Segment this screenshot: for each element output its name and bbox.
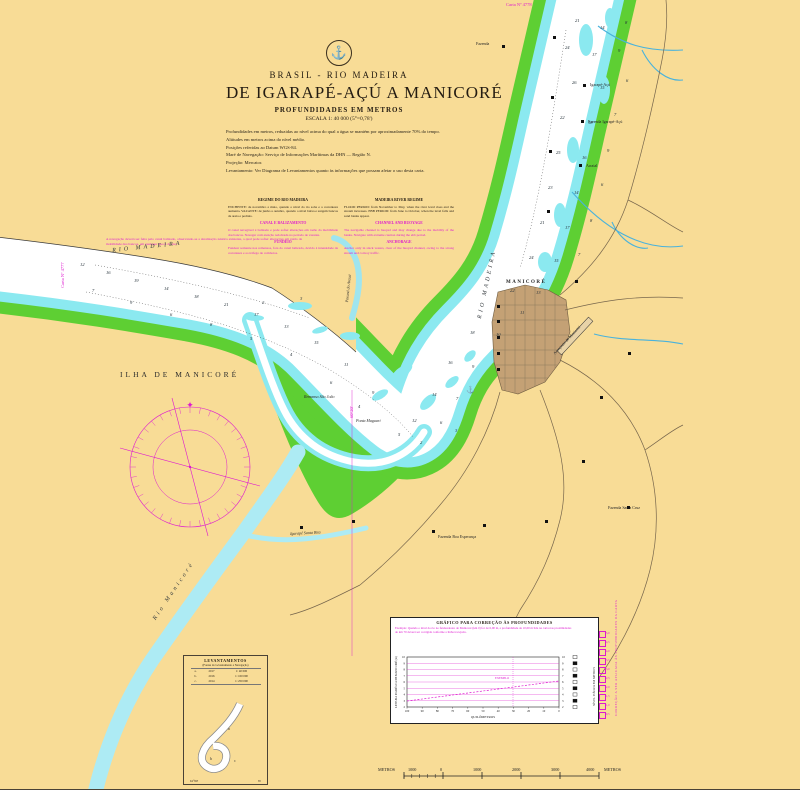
- depth-sounding: 18: [194, 294, 199, 299]
- graph-title: GRÁFICO PARA CORREÇÃO ÀS PROFUNDIDADES: [391, 620, 598, 625]
- depth-sounding: 5: [250, 336, 252, 341]
- svg-text:a: a: [228, 726, 230, 731]
- depth-sounding: 8: [210, 322, 212, 327]
- depth-sounding: 8: [590, 218, 592, 223]
- svg-text:90: 90: [421, 709, 425, 713]
- map-label: Arraial: [586, 163, 597, 168]
- note-line: Profundidades em metros, reduzidas ao ní…: [226, 128, 452, 136]
- correction-bar: [599, 694, 606, 701]
- depth-sounding: 4: [290, 352, 292, 357]
- anchorage-icon: ⚓: [466, 385, 475, 394]
- note-line: Altitudes em metros acima do nível médio…: [226, 136, 452, 144]
- surveys-subtitle: (Fontes do Levantamento e Navegação): [184, 663, 267, 667]
- depth-sounding: 3: [455, 428, 457, 433]
- svg-text:20: 20: [527, 709, 531, 713]
- notes-en-channel: The navigable channel is buoyed and may …: [344, 228, 454, 238]
- depth-sounding: 4: [358, 404, 360, 409]
- depth-sounding: 6: [170, 312, 172, 317]
- svg-text:60: 60: [466, 709, 470, 713]
- scale-bar: [404, 772, 599, 779]
- svg-text:4: 4: [404, 693, 406, 697]
- building-square: [627, 506, 630, 509]
- building-square: [581, 120, 584, 123]
- map-label: Carta Nº 4777: [60, 262, 65, 288]
- map-label: Fazenda Santa Cruz: [608, 505, 640, 510]
- scale-bar-label: METROS: [604, 767, 621, 772]
- svg-text:8: 8: [562, 668, 564, 672]
- depth-sounding: 21: [540, 220, 545, 225]
- scale-bar-label: METROS: [378, 767, 395, 772]
- depth-sounding: 13: [536, 290, 541, 295]
- svg-text:70: 70: [451, 709, 455, 713]
- correction-value: 2,5: [606, 677, 610, 680]
- svg-text:5: 5: [562, 686, 564, 690]
- depth-sounding: 6: [440, 420, 442, 425]
- depth-sounding: 24: [565, 45, 570, 50]
- building-square: [600, 396, 603, 399]
- svg-text:b: b: [210, 756, 212, 761]
- chart-subtitle-depths: PROFUNDIDADES EM METROS: [226, 106, 452, 114]
- paper-margin: [0, 790, 800, 800]
- surveys-longitude-labels: 61°00' W: [184, 779, 267, 783]
- scale-bar-label: 1000: [408, 767, 416, 772]
- depth-sounding: 14: [574, 190, 579, 195]
- svg-text:7: 7: [562, 674, 564, 678]
- notes-pt-fundeio: Fundear somente nos remansos, fora do ca…: [228, 246, 338, 256]
- svg-text:EXEMPLO: EXEMPLO: [495, 676, 510, 680]
- svg-text:2: 2: [562, 705, 564, 709]
- building-square: [483, 524, 486, 527]
- chart-title: DE IGARAPÉ-AÇÚ A MANICORÉ: [226, 83, 452, 103]
- correction-value: 1,5: [606, 695, 610, 698]
- svg-text:30: 30: [512, 709, 516, 713]
- depth-sounding: 12: [412, 418, 417, 423]
- depth-sounding: 22: [510, 288, 515, 293]
- scale-bar-label: 1000: [473, 767, 481, 772]
- notes-column-portuguese: REGIME DO RIO MADEIRA ENCHENTE: de novem…: [228, 196, 338, 258]
- depth-sounding: 21: [575, 18, 580, 23]
- depth-sounding: 11: [344, 362, 348, 367]
- longitude-hemisphere: W: [258, 779, 261, 783]
- depth-sounding: 2: [420, 440, 422, 445]
- compass-rose: ✦: [120, 398, 260, 536]
- correction-bar: [599, 640, 606, 647]
- graph-right-caption: CORREÇÃO A SER APLICADA ÀS PROFUNDIDADES…: [614, 600, 618, 716]
- depth-sounding: 6: [330, 380, 332, 385]
- building-square: [553, 36, 556, 39]
- svg-text:5: 5: [404, 686, 406, 690]
- svg-text:10: 10: [562, 655, 566, 659]
- note-line: Projeção: Mercator.: [226, 159, 452, 167]
- building-square: [579, 164, 582, 167]
- building-square: [497, 336, 500, 339]
- depth-sounding: 26: [572, 80, 577, 85]
- map-label: MANICORÉ: [506, 280, 546, 285]
- correction-value: 5,0: [606, 632, 610, 635]
- depth-sounding: 17: [565, 225, 570, 230]
- correction-value: 1,0: [606, 704, 610, 707]
- correction-value: 2,0: [606, 686, 610, 689]
- depth-sounding: 16: [582, 155, 587, 160]
- building-square: [582, 460, 585, 463]
- svg-text:6: 6: [404, 680, 406, 684]
- building-square: [575, 280, 578, 283]
- svg-text:50: 50: [482, 709, 486, 713]
- scale-bar-label: 3000: [551, 767, 559, 772]
- depth-sounding: 21: [224, 302, 229, 307]
- svg-text:10: 10: [402, 655, 406, 659]
- svg-text:4: 4: [562, 693, 564, 697]
- scale-bar-label: 0: [440, 767, 442, 772]
- depth-sounding: 7: [578, 252, 580, 257]
- notes-en-title: MADEIRA RIVER REGIME: [344, 198, 454, 204]
- scale-bar-label: 2000: [512, 767, 520, 772]
- correction-bar: [599, 649, 606, 656]
- title-block-notes: Profundidades em metros, reduzidas ao ní…: [226, 128, 452, 175]
- correction-value: 3,0: [606, 668, 610, 671]
- svg-text:8: 8: [404, 668, 406, 672]
- depth-sounding: 14: [164, 286, 169, 291]
- notes-en-anchorage: Anchor only in slack waters, clear of th…: [344, 246, 454, 256]
- svg-text:40: 40: [497, 709, 501, 713]
- correction-value: 4,5: [606, 641, 610, 644]
- notes-pt-canal-heading: CANAL E BALIZAMENTO: [228, 221, 338, 227]
- correction-value: 4,0: [606, 650, 610, 653]
- depth-sounding: 7: [614, 112, 616, 117]
- correction-value: 3,5: [606, 659, 610, 662]
- scale-bar-label: 4000: [586, 767, 594, 772]
- correction-bar: [599, 667, 606, 674]
- depth-sounding: 7: [92, 288, 94, 293]
- svg-text:80: 80: [436, 709, 440, 713]
- chart-subtitle-scale: ESCALA 1: 40 000 (5°=0,78'): [226, 116, 452, 122]
- depth-sounding: 25: [556, 150, 561, 155]
- title-block: ⚓ BRASIL - RIO MADEIRA DE IGARAPÉ-AÇÚ A …: [226, 40, 452, 175]
- depth-sounding: 18: [470, 330, 475, 335]
- depth-sounding: 22: [560, 115, 565, 120]
- notes-en-regime: FLOOD PERIOD: from November to May, when…: [344, 205, 454, 220]
- surveys-table-row: c.20141: 250 000: [191, 679, 261, 684]
- notes-en-anchorage-heading: ANCHORAGE: [344, 240, 454, 246]
- nautical-chart-page: { "chart": { "country_line": "BRASIL - R…: [0, 0, 800, 800]
- map-label: ILHA DE MANICORÉ: [120, 370, 239, 379]
- notes-column-english: MADEIRA RIVER REGIME FLOOD PERIOD: from …: [344, 196, 454, 258]
- building-square: [300, 526, 303, 529]
- correction-bar: [599, 676, 606, 683]
- building-square: [547, 210, 550, 213]
- depth-sounding: 8: [625, 20, 627, 25]
- map-label: Remanso São João: [304, 394, 334, 399]
- svg-text:6: 6: [562, 680, 564, 684]
- map-label: Fazenda: [476, 41, 489, 46]
- depth-sounding: 15: [600, 85, 605, 90]
- depth-sounding: 5: [398, 432, 400, 437]
- note-line: Levantamento: Ver Diagrama de Levantamen…: [226, 167, 452, 175]
- map-label: Fazenda Igarapé-Açú: [588, 119, 622, 124]
- graph-example-line2: do km 70 deverá ser corrigida conforme a…: [395, 630, 466, 634]
- depth-correction-graph-inset: GRÁFICO PARA CORREÇÃO ÀS PROFUNDIDADES E…: [390, 617, 599, 724]
- building-square: [497, 305, 500, 308]
- notes-pt-title: REGIME DO RIO MADEIRA: [228, 198, 338, 204]
- building-square: [497, 352, 500, 355]
- manicore-town: [488, 280, 593, 400]
- correction-bar: [599, 631, 606, 638]
- map-label: Fazenda Boa Esperança: [438, 534, 476, 539]
- depth-sounding: 14: [432, 392, 437, 397]
- map-label: Carta Nº 4778: [506, 2, 532, 7]
- correction-bar: [599, 712, 606, 719]
- graph-plot: 1010998877665544332210090807060504030201…: [391, 643, 598, 723]
- depth-sounding: 17: [592, 52, 597, 57]
- correction-bar: [599, 703, 606, 710]
- navy-emblem-anchor-icon: ⚓: [326, 40, 352, 66]
- svg-text:c: c: [234, 758, 236, 763]
- depth-sounding: 16: [448, 360, 453, 365]
- svg-text:LEITURA DA RÉGUA DE MANICORÉ (: LEITURA DA RÉGUA DE MANICORÉ (m): [395, 656, 398, 707]
- depth-sounding: 7: [456, 396, 458, 401]
- depth-sounding: 17: [254, 312, 259, 317]
- svg-text:3: 3: [404, 699, 406, 703]
- map-label: 60°20': [349, 406, 354, 418]
- svg-text:100: 100: [405, 709, 410, 713]
- building-square: [497, 368, 500, 371]
- map-label: Ponta Maguari: [356, 418, 381, 423]
- svg-text:10: 10: [542, 709, 546, 713]
- note-line: Posições referidas ao Datum WGS-84.: [226, 144, 452, 152]
- svg-text:9: 9: [404, 661, 406, 665]
- building-square: [551, 96, 554, 99]
- depth-sounding: 9: [607, 148, 609, 153]
- correction-bar: [599, 685, 606, 692]
- svg-text:9: 9: [562, 661, 564, 665]
- depth-sounding: 18: [588, 120, 593, 125]
- building-square: [549, 150, 552, 153]
- svg-text:QUILÔMETROS: QUILÔMETROS: [471, 714, 495, 719]
- building-square: [432, 530, 435, 533]
- building-square: [352, 520, 355, 523]
- longitude-label: 61°00': [190, 779, 198, 783]
- depth-sounding: 9: [472, 364, 474, 369]
- correction-bar: [599, 658, 606, 665]
- surveys-minimap: a b c: [184, 702, 267, 782]
- graph-example-text: Exemplo: Quando o nível do rio no fundea…: [395, 626, 594, 634]
- notes-en-channel-heading: CHANNEL AND BUOYAGE: [344, 221, 454, 227]
- depth-sounding: 3: [300, 296, 302, 301]
- depth-sounding: 13: [284, 324, 289, 329]
- depth-sounding: 2: [262, 300, 264, 305]
- depth-sounding: 12: [80, 262, 85, 267]
- north-star-icon: ✦: [186, 400, 194, 410]
- depth-sounding: 11: [520, 310, 524, 315]
- depth-sounding: 9: [130, 300, 132, 305]
- building-square: [497, 320, 500, 323]
- depth-sounding: 15: [314, 340, 319, 345]
- notes-pt-regime: ENCHENTE: de novembro a maio, quando o n…: [228, 205, 338, 220]
- building-square: [583, 84, 586, 87]
- surveys-diagram-inset: LEVANTAMENTOS (Fontes do Levantamento e …: [183, 655, 268, 785]
- note-line: Maré de Navegação: Serviço de Informaçõe…: [226, 151, 452, 159]
- depth-sounding: 9: [618, 48, 620, 53]
- depth-sounding: 14: [600, 25, 605, 30]
- svg-text:7: 7: [404, 674, 406, 678]
- building-square: [545, 520, 548, 523]
- country-line: BRASIL - RIO MADEIRA: [226, 70, 452, 80]
- surveys-table: a.20171: 40 000b.20161: 100 000c.20141: …: [191, 668, 261, 685]
- depth-sounding: 6: [601, 182, 603, 187]
- depth-sounding: 23: [548, 185, 553, 190]
- depth-sounding: 9: [372, 390, 374, 395]
- depth-sounding: 24: [529, 255, 534, 260]
- depth-sounding: 6: [626, 78, 628, 83]
- correction-value: 0,5: [606, 713, 610, 716]
- building-square: [628, 352, 631, 355]
- svg-text:3: 3: [562, 699, 564, 703]
- depth-sounding: 15: [554, 258, 559, 263]
- svg-text:0: 0: [558, 709, 560, 713]
- depth-sounding: 16: [106, 270, 111, 275]
- graph-right-axis-label: NÍVEL D'ÁGUA EM METROS: [592, 667, 596, 706]
- depth-sounding: 19: [134, 278, 139, 283]
- building-square: [502, 45, 505, 48]
